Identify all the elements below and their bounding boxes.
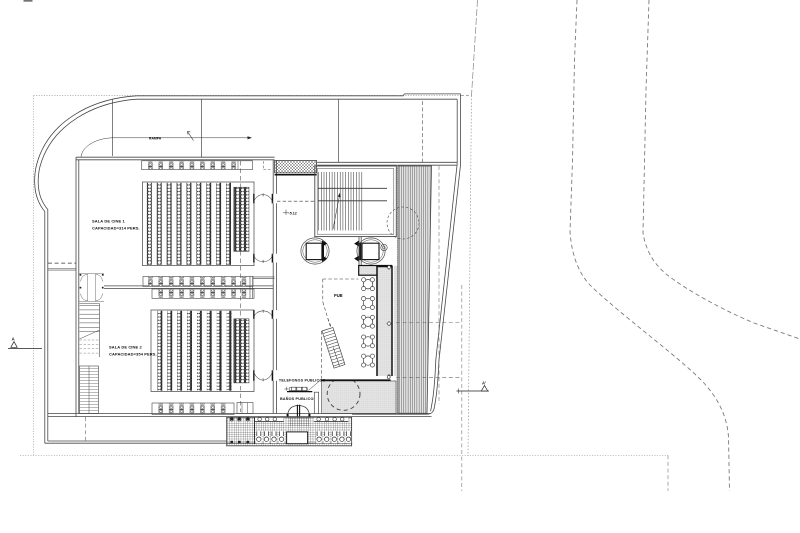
svg-text:A': A': [482, 380, 486, 385]
svg-text:RAMPA: RAMPA: [149, 136, 162, 140]
svg-text:PUB: PUB: [334, 293, 343, 298]
svg-text:CAPACIDAD=354 PERS.: CAPACIDAD=354 PERS.: [109, 352, 157, 357]
svg-text:SALA DE CINE 1: SALA DE CINE 1: [92, 219, 125, 224]
svg-text:A: A: [12, 337, 15, 342]
svg-text:-5.12: -5.12: [289, 212, 297, 216]
svg-text:BAÑOS PUBLICOS: BAÑOS PUBLICOS: [280, 396, 317, 401]
svg-text:CAPACIDAD=314 PERS.: CAPACIDAD=314 PERS.: [92, 226, 140, 231]
svg-text:SALA DE CINE 2: SALA DE CINE 2: [109, 345, 142, 350]
